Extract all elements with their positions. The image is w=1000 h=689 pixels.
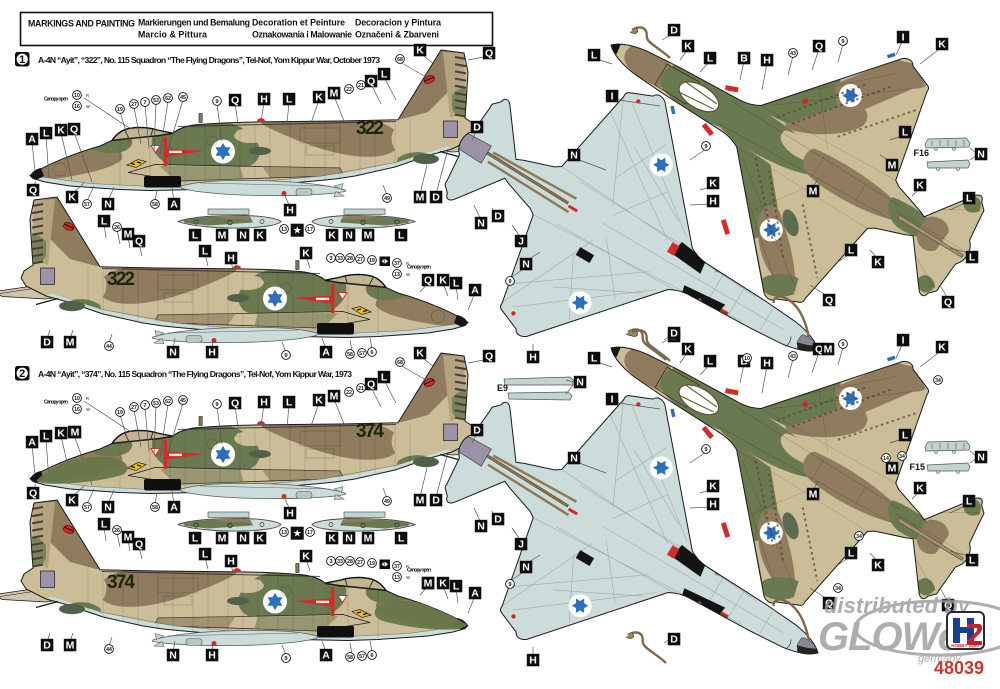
- svg-text:M: M: [71, 427, 80, 439]
- svg-text:M: M: [424, 578, 433, 590]
- svg-text:Markierungen und Bemalung: Markierungen und Bemalung: [138, 18, 250, 28]
- svg-text:A-4N “Ayit”, “374”, No. 115 Sq: A-4N “Ayit”, “374”, No. 115 Squadron “Th…: [38, 369, 352, 379]
- svg-text:F16: F16: [913, 148, 929, 158]
- svg-text:HOBBY 2000: HOBBY 2000: [951, 643, 979, 648]
- svg-text:Marcio & Pittura: Marcio & Pittura: [138, 30, 207, 40]
- svg-text:374: 374: [356, 421, 384, 442]
- svg-text:E9: E9: [497, 383, 508, 393]
- svg-text:Decoracion y Pintura: Decoracion y Pintura: [355, 18, 441, 28]
- svg-text:F15: F15: [909, 462, 925, 472]
- svg-text:374: 374: [107, 572, 135, 593]
- svg-text:Označeni & Zbarveni: Označeni & Zbarveni: [355, 30, 439, 40]
- svg-text:322: 322: [356, 118, 384, 139]
- svg-text:10: 10: [744, 356, 750, 362]
- svg-text:Decoration et Peinture: Decoration et Peinture: [252, 18, 345, 28]
- svg-text:1: 1: [19, 54, 25, 66]
- svg-text:34: 34: [935, 378, 941, 384]
- svg-text:48039: 48039: [934, 658, 984, 678]
- svg-text:N: N: [576, 377, 584, 389]
- svg-text:2: 2: [19, 368, 25, 380]
- svg-text:MARKINGS AND PAINTING: MARKINGS AND PAINTING: [28, 19, 135, 29]
- svg-text:34: 34: [899, 454, 905, 460]
- svg-text:14: 14: [883, 456, 889, 462]
- svg-text:322: 322: [107, 269, 135, 290]
- svg-text:34: 34: [856, 534, 862, 540]
- svg-text:M: M: [824, 344, 833, 356]
- svg-text:34: 34: [835, 586, 841, 592]
- svg-text:A-4N “Ayit”, “322”, No. 115 Sq: A-4N “Ayit”, “322”, No. 115 Squadron “Th…: [38, 55, 380, 65]
- svg-text:Oznakowania i Malowanie: Oznakowania i Malowanie: [252, 30, 352, 40]
